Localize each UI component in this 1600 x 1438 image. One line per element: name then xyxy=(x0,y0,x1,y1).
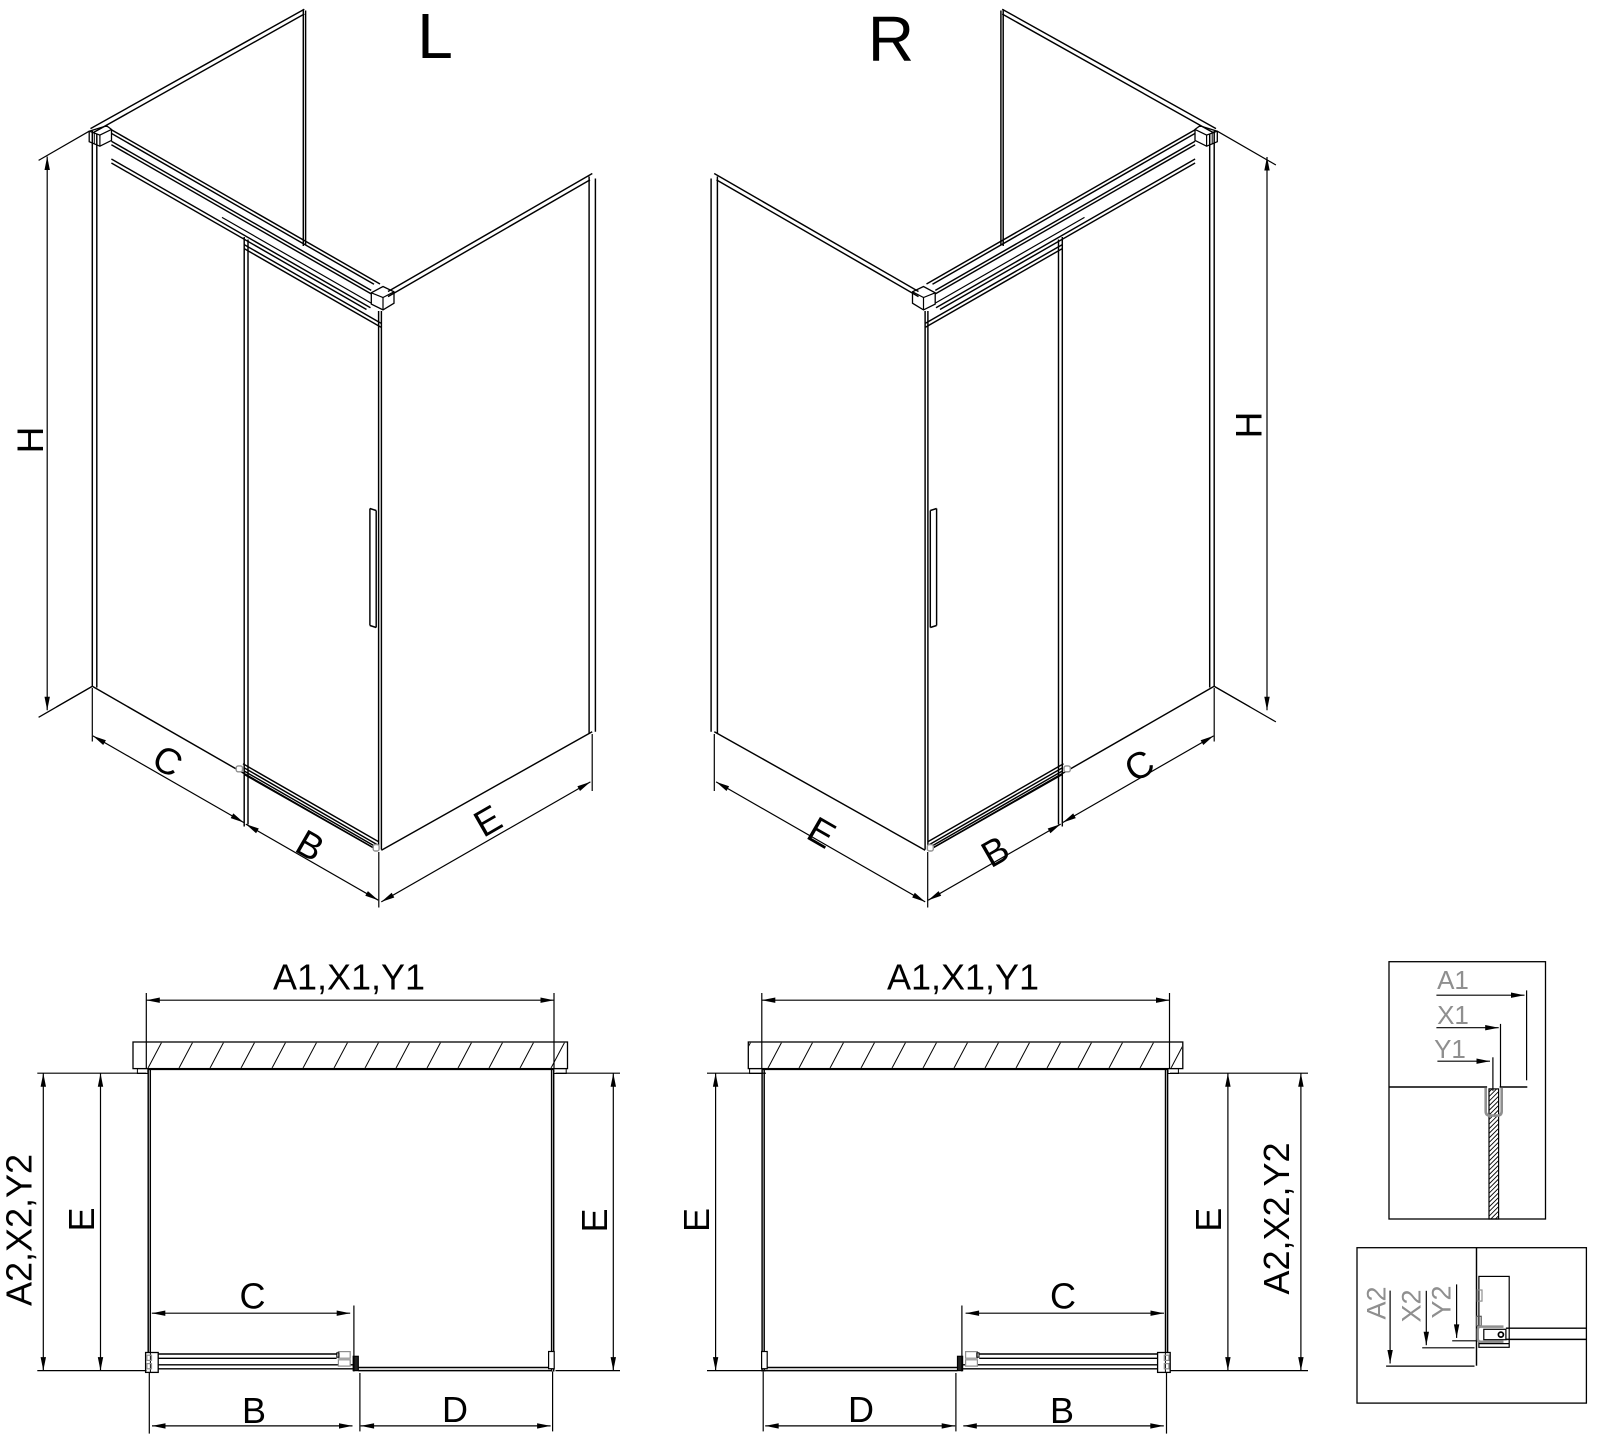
svg-text:B: B xyxy=(242,1390,266,1431)
svg-text:E: E xyxy=(676,1208,717,1232)
svg-text:X1: X1 xyxy=(1437,1000,1469,1030)
svg-text:X2: X2 xyxy=(1397,1289,1427,1322)
svg-text:E: E xyxy=(1188,1208,1229,1232)
svg-text:L: L xyxy=(417,0,453,72)
svg-text:B: B xyxy=(1050,1390,1074,1431)
svg-text:H: H xyxy=(1228,412,1269,439)
svg-text:Y2: Y2 xyxy=(1427,1285,1457,1318)
svg-text:A1: A1 xyxy=(1437,965,1469,995)
svg-text:A2,X2,Y2: A2,X2,Y2 xyxy=(0,1154,40,1306)
svg-text:C: C xyxy=(240,1276,266,1317)
svg-text:D: D xyxy=(442,1389,468,1430)
svg-text:A1,X1,Y1: A1,X1,Y1 xyxy=(887,957,1039,998)
svg-text:A1,X1,Y1: A1,X1,Y1 xyxy=(273,957,425,998)
svg-text:C: C xyxy=(1050,1276,1076,1317)
svg-text:E: E xyxy=(574,1208,615,1232)
svg-text:A2: A2 xyxy=(1362,1286,1392,1319)
svg-text:Y1: Y1 xyxy=(1434,1034,1466,1064)
svg-text:H: H xyxy=(10,427,51,454)
svg-text:D: D xyxy=(848,1389,874,1430)
svg-text:R: R xyxy=(868,3,914,75)
svg-text:E: E xyxy=(61,1207,102,1231)
svg-text:A2,X2,Y2: A2,X2,Y2 xyxy=(1256,1142,1297,1294)
